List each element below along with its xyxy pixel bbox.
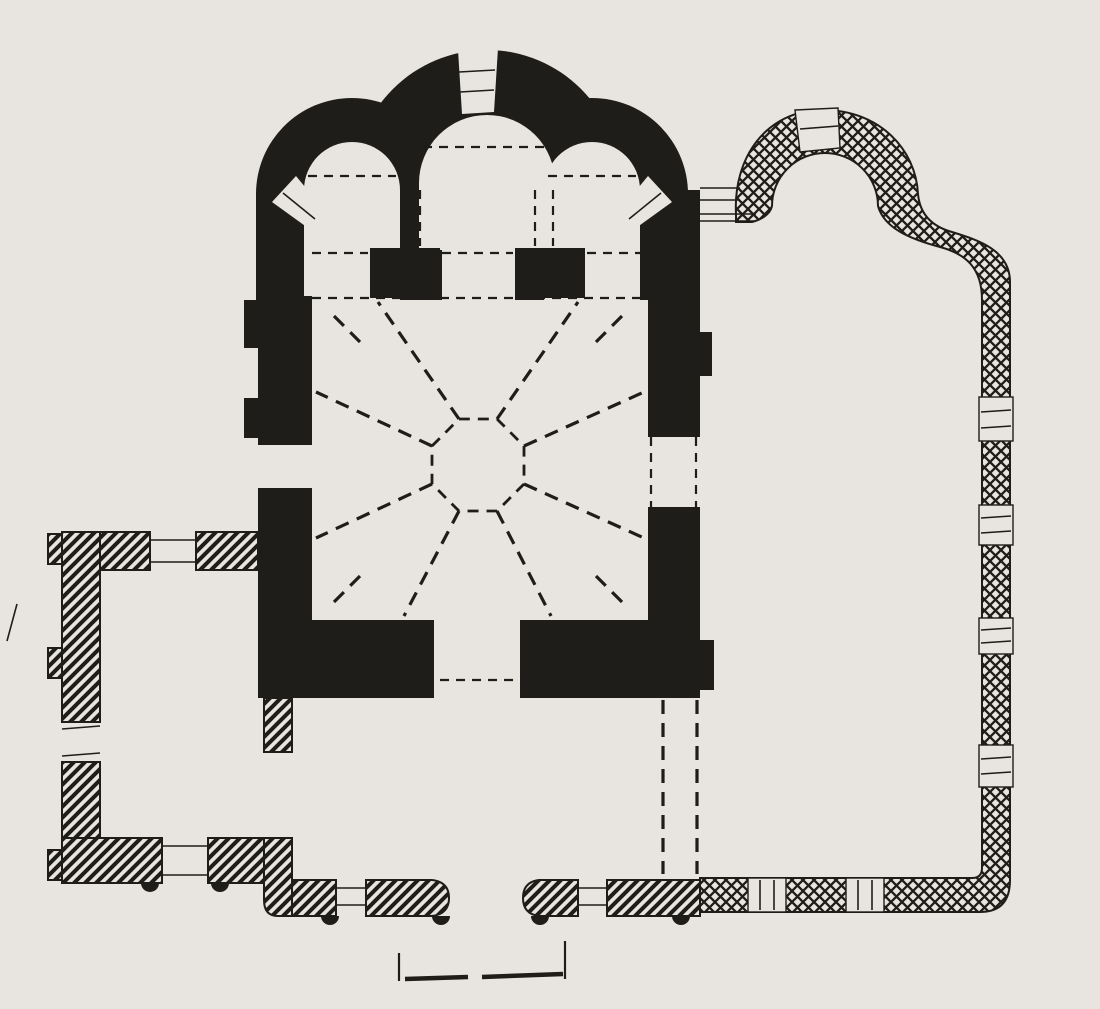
ne-corner-fill bbox=[684, 190, 700, 300]
enclosure-window-2 bbox=[979, 505, 1013, 545]
nave-t-pier-west bbox=[370, 248, 440, 298]
enclosure-apse-window bbox=[795, 108, 840, 152]
porch-wall-d bbox=[607, 880, 700, 916]
annex-se-pier bbox=[264, 838, 292, 916]
floor-plan-svg bbox=[0, 0, 1100, 1009]
floor-plan-figure bbox=[0, 0, 1100, 1009]
annex-north-wall-east bbox=[196, 532, 258, 570]
porch-wall-a bbox=[292, 880, 336, 916]
naos-west-buttress-2 bbox=[244, 398, 258, 438]
annex-buttress-nw bbox=[48, 534, 62, 564]
annex-west-wall-north bbox=[62, 532, 100, 722]
naos-east-buttress bbox=[700, 332, 712, 376]
scale-bar-segment-1 bbox=[405, 977, 468, 979]
porch-wall-b bbox=[366, 880, 449, 916]
nave-t-pier-east bbox=[515, 248, 585, 298]
naos-interior bbox=[312, 300, 648, 620]
annex-east-stub bbox=[264, 698, 292, 752]
sw-pier-foot bbox=[312, 620, 434, 698]
scale-bar-segment-2 bbox=[482, 974, 563, 977]
annex-south-wall-west bbox=[62, 838, 162, 883]
enclosure-south-window-1 bbox=[748, 878, 786, 912]
naos-west-wall-lower bbox=[258, 488, 312, 698]
enclosure-window-4 bbox=[979, 745, 1013, 787]
se-pier bbox=[520, 620, 657, 698]
naos-west-wall-upper bbox=[258, 296, 312, 445]
enclosure-south-window-2 bbox=[846, 878, 884, 912]
naos-east-wall-upper bbox=[648, 296, 700, 437]
naos-west-buttress-1 bbox=[244, 300, 258, 348]
enclosure-window-3 bbox=[979, 618, 1013, 654]
central-apse-window bbox=[458, 48, 498, 114]
se-pier-bump bbox=[700, 640, 714, 690]
annex-buttress-sw bbox=[48, 850, 62, 880]
enclosure-window-1 bbox=[979, 397, 1013, 441]
porch-wall-c bbox=[523, 880, 578, 916]
annex-buttress-west bbox=[48, 648, 62, 678]
annex-south-wall-east bbox=[208, 838, 264, 883]
